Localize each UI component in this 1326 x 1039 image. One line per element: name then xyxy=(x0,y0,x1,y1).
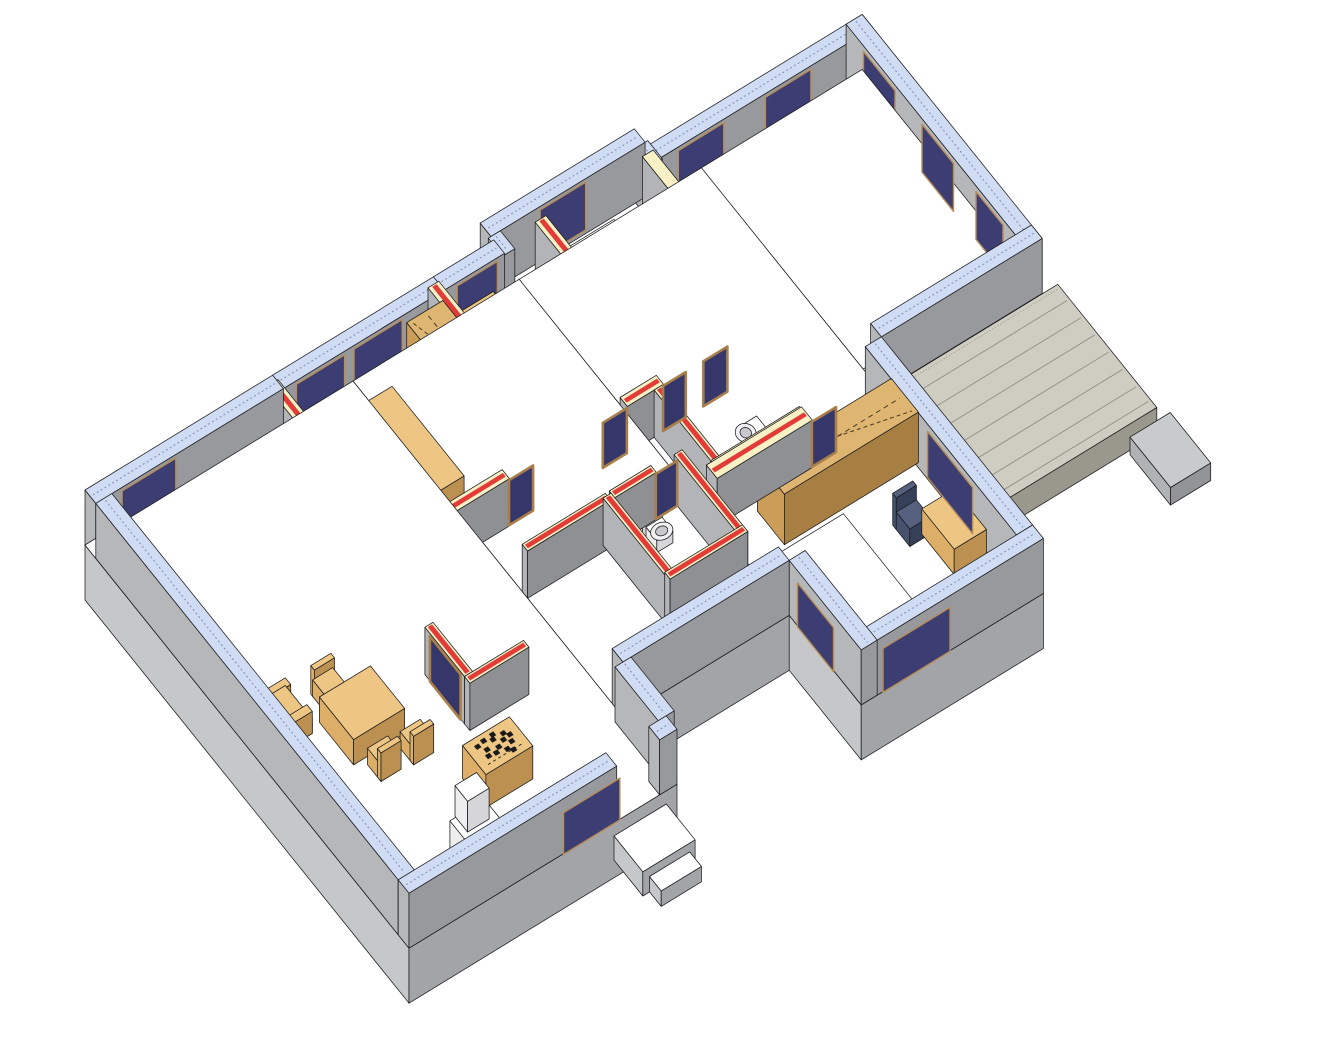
3d-house-viewport[interactable] xyxy=(0,0,1326,1039)
house-model-canvas[interactable] xyxy=(0,0,1326,1039)
wall-sw-entry-post[interactable] xyxy=(649,716,677,795)
